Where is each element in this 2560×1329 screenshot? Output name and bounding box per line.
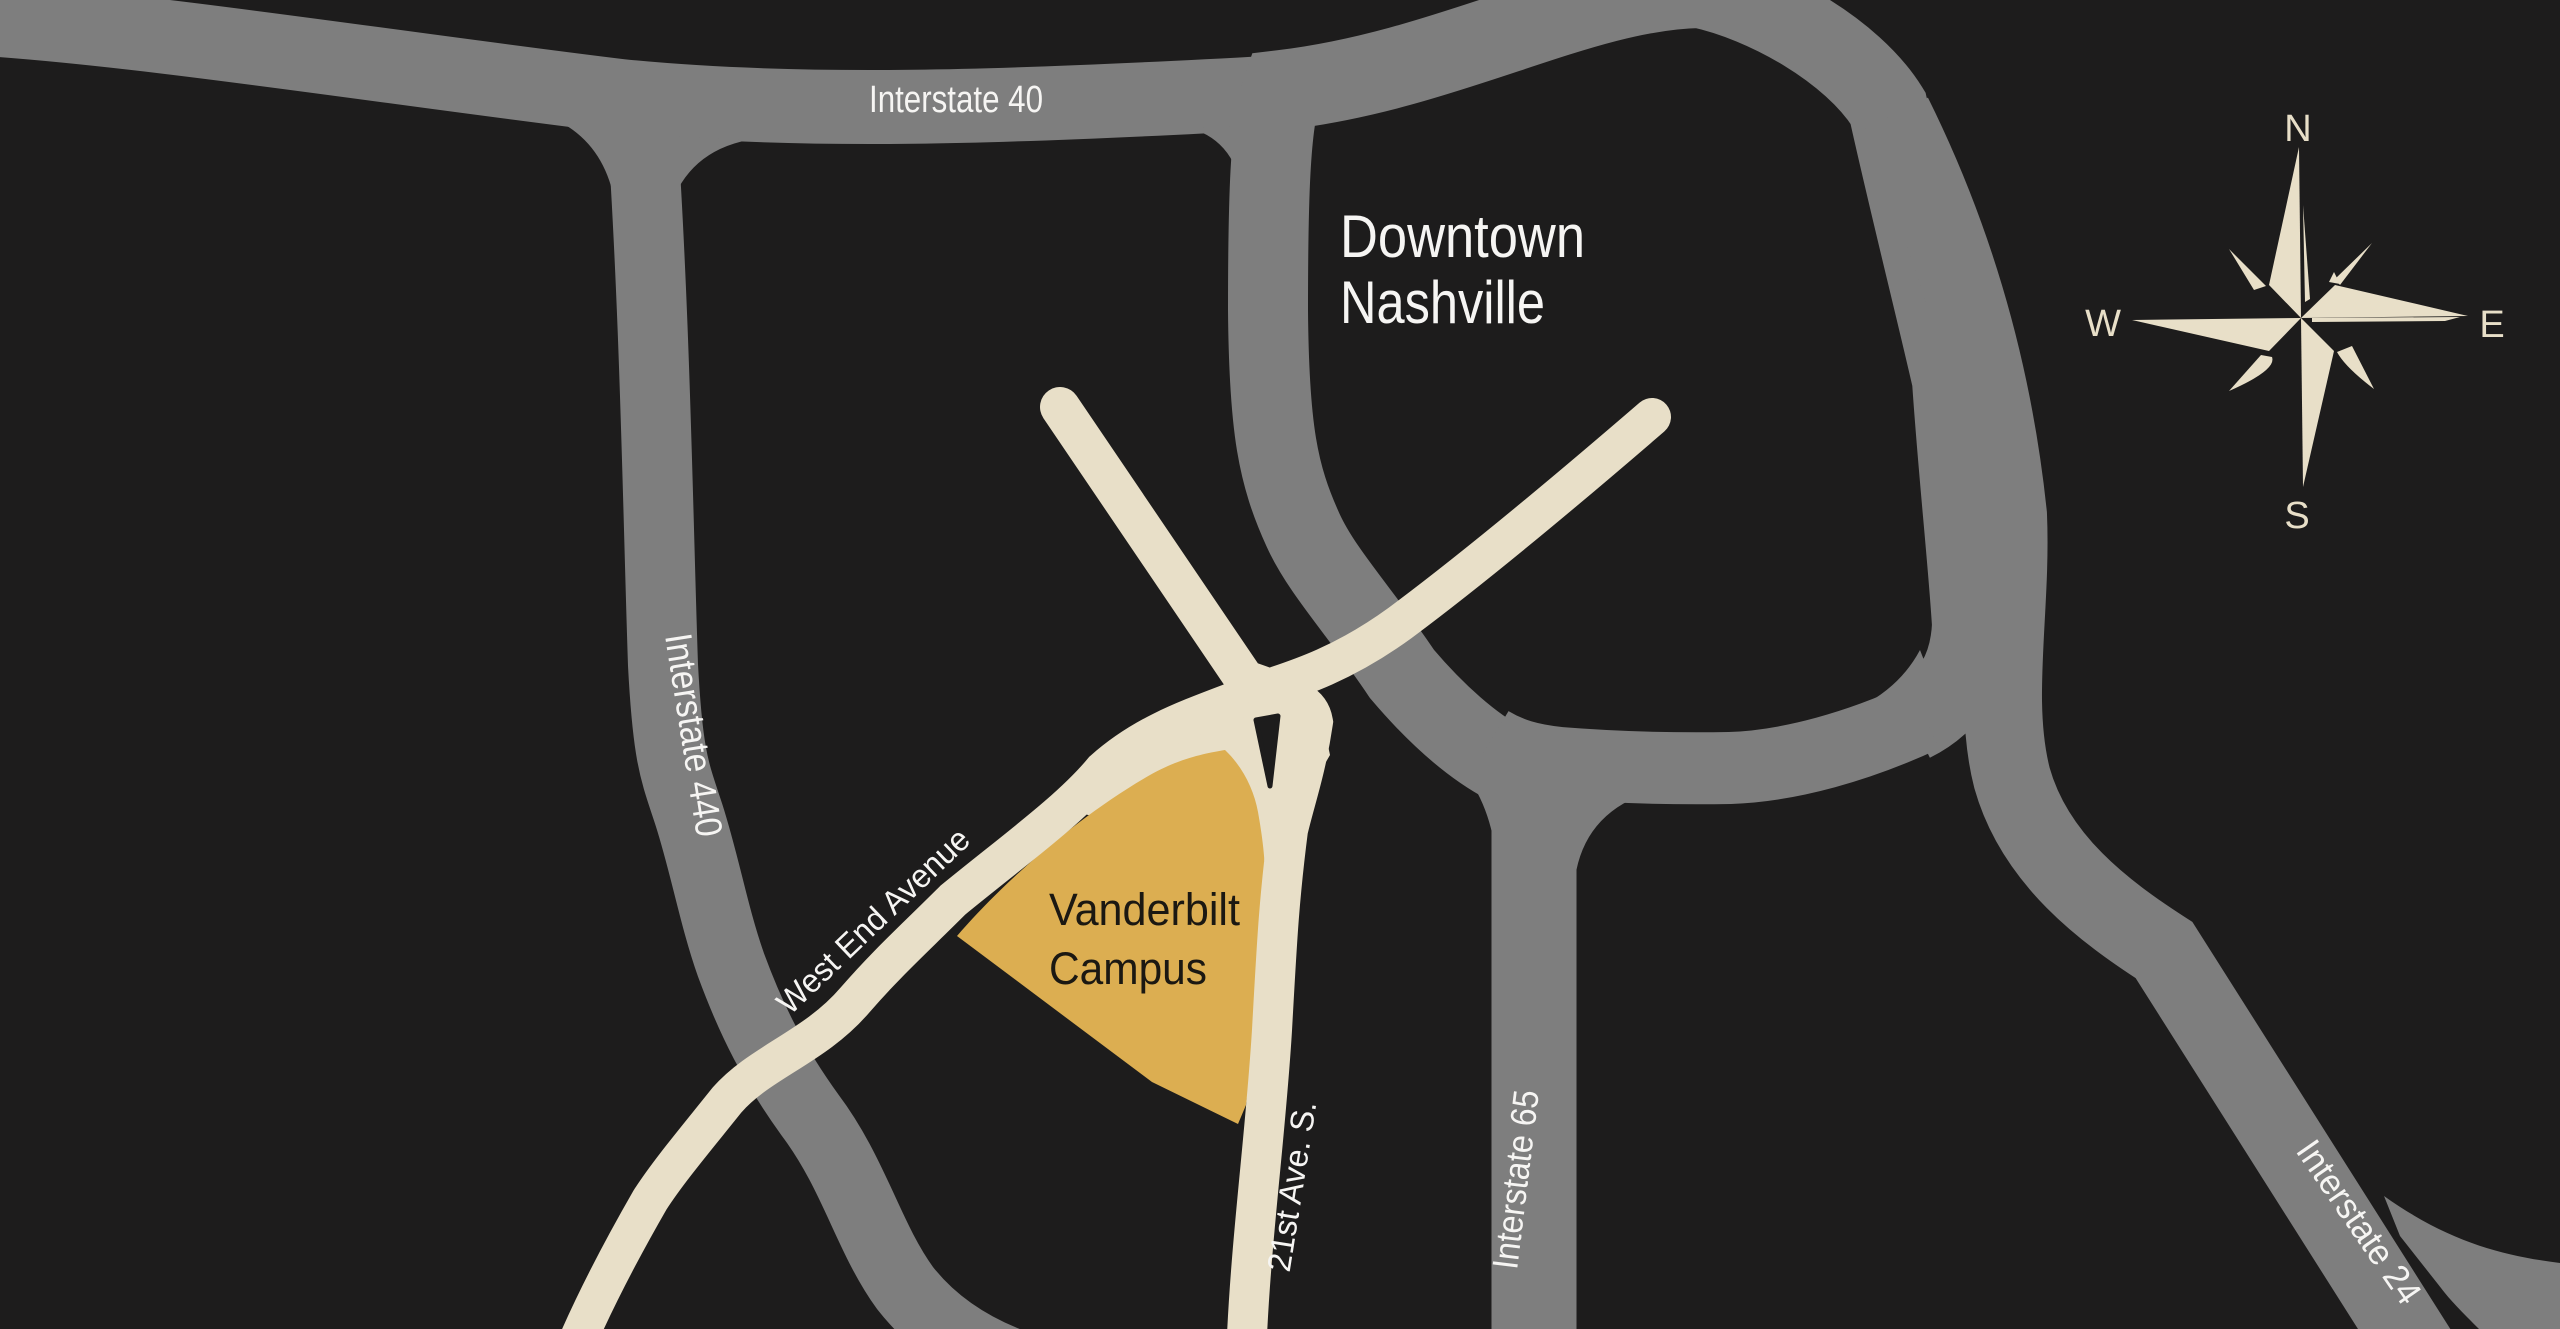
svg-text:Nashville: Nashville — [1340, 269, 1545, 336]
svg-text:E: E — [2479, 304, 2504, 346]
svg-text:S: S — [2284, 495, 2309, 537]
svg-text:Campus: Campus — [1049, 943, 1207, 994]
svg-text:Vanderbilt: Vanderbilt — [1049, 884, 1240, 935]
svg-text:N: N — [2284, 108, 2311, 150]
svg-text:W: W — [2085, 303, 2121, 345]
svg-text:Interstate 40: Interstate 40 — [869, 79, 1043, 121]
svg-text:Downtown: Downtown — [1340, 203, 1585, 270]
